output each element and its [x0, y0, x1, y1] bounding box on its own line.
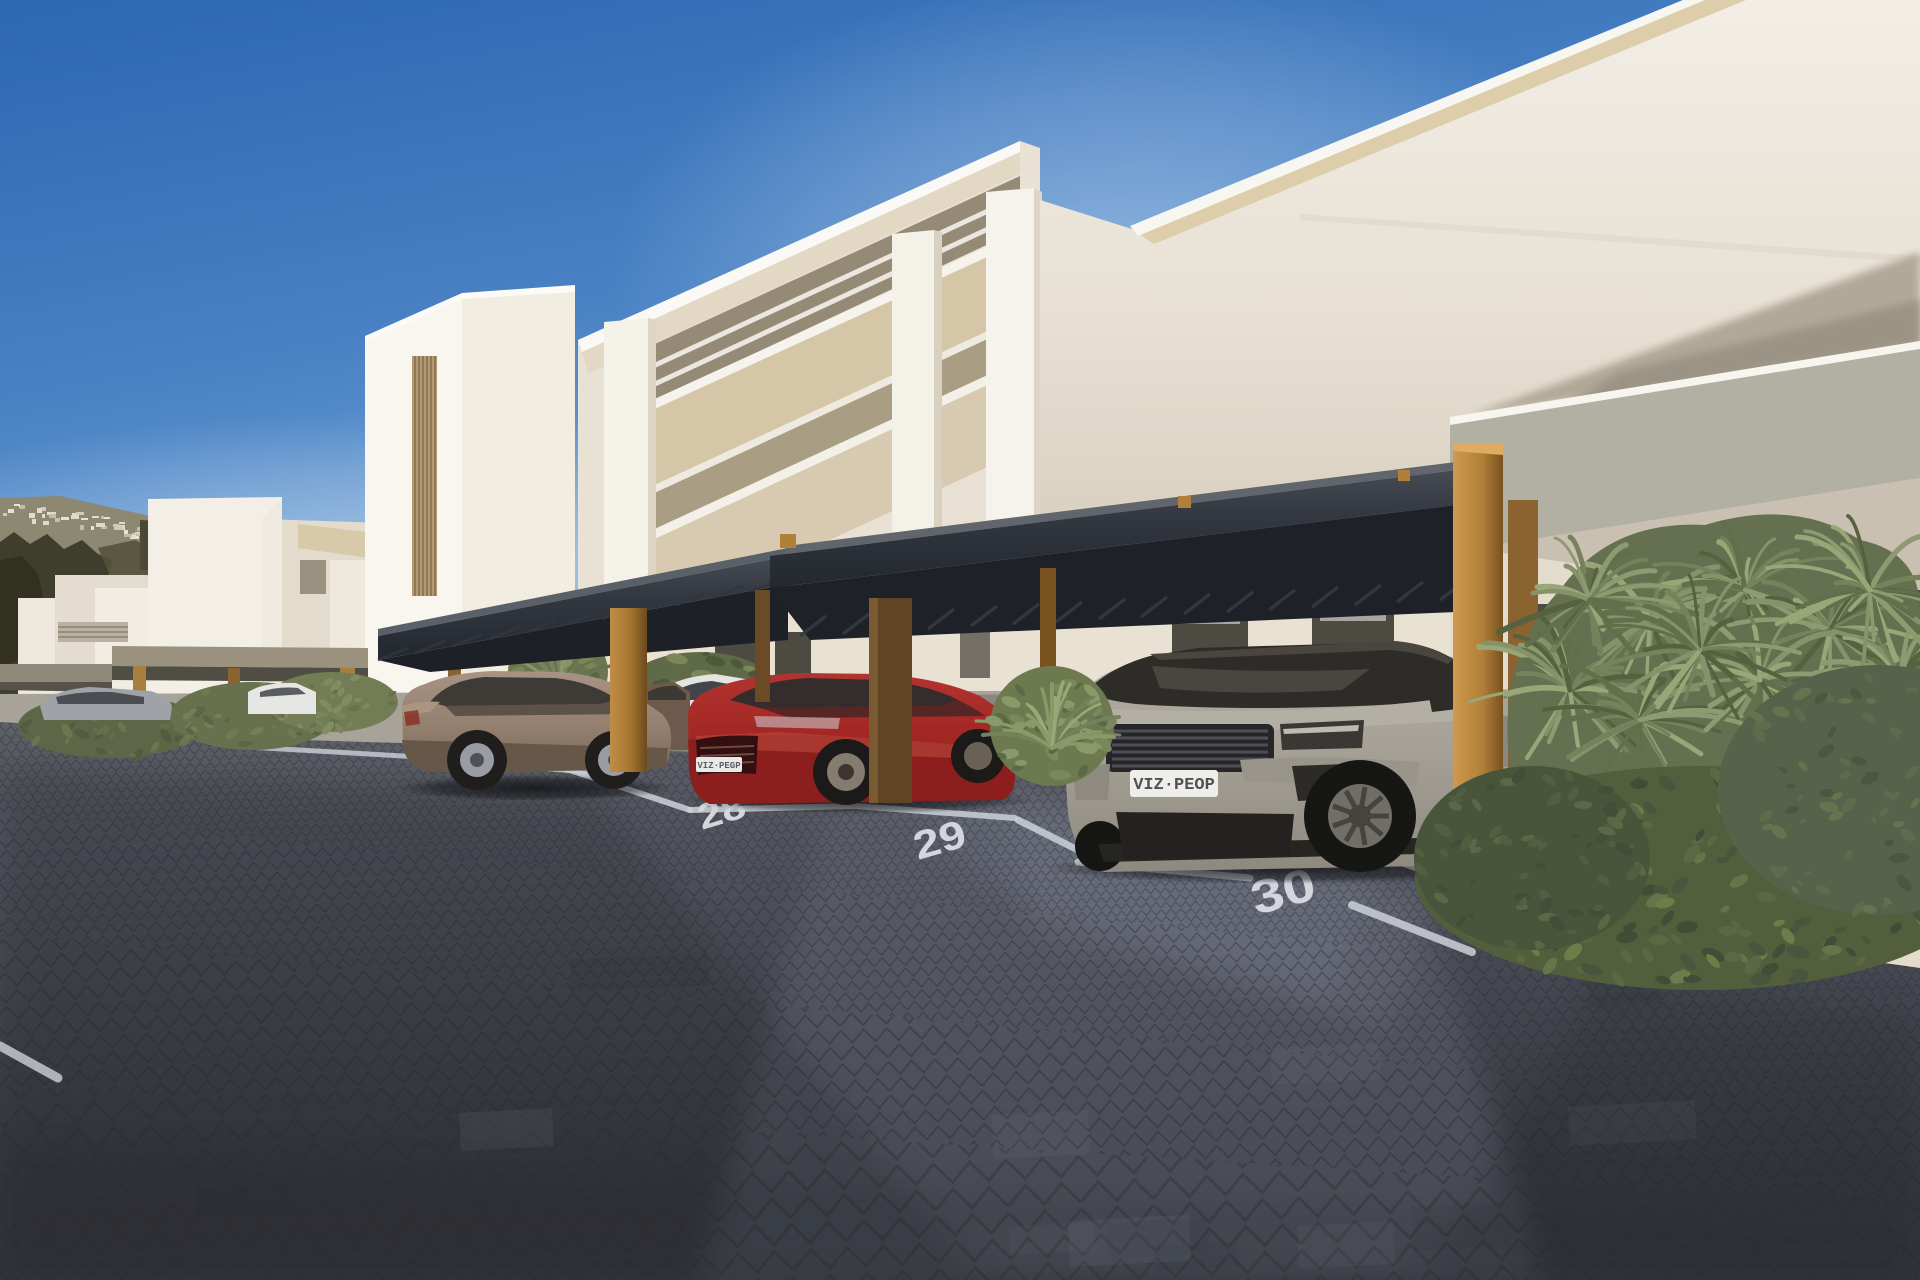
svg-text:VIZ·PEGP: VIZ·PEGP	[697, 761, 741, 771]
svg-text:VIZ·PEOP: VIZ·PEOP	[1133, 776, 1215, 795]
